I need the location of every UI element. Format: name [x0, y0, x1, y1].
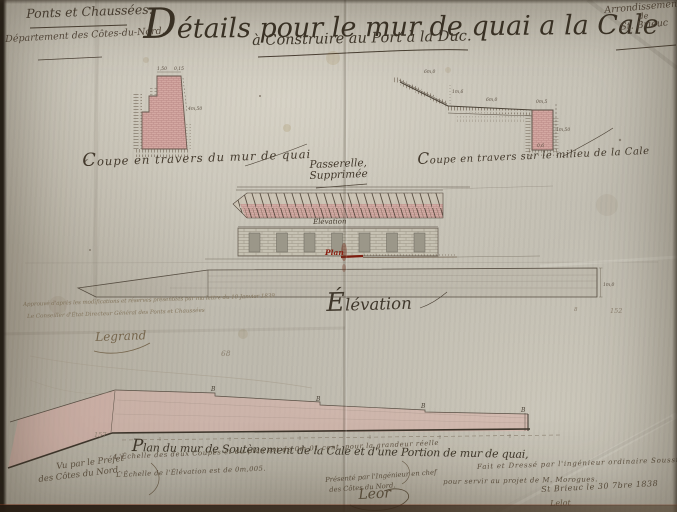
passerelle-caption: Passerelle, Supprimée — [309, 158, 368, 182]
svg-text:B: B — [210, 386, 216, 393]
photo-edge-right — [672, 0, 677, 512]
svg-text:1m,6: 1m,6 — [452, 89, 464, 95]
svg-text:4m,50: 4m,50 — [187, 106, 202, 112]
ramp-plan-drawing — [233, 186, 553, 218]
pencil-number-8: 8 — [574, 308, 578, 314]
photo-edge-left — [0, 0, 7, 512]
svg-text:1m,50: 1m,50 — [556, 127, 570, 133]
svg-text:B: B — [315, 396, 321, 403]
svg-text:B: B — [520, 407, 526, 414]
plan-red-caption: Plan — [325, 249, 344, 257]
presented-signature: Leor — [358, 486, 391, 502]
elevation-caption: Élévation — [326, 288, 412, 317]
svg-text:0m,5: 0m,5 — [536, 99, 548, 105]
coupe-right-drawing — [392, 76, 559, 156]
svg-text:6m,0: 6m,0 — [424, 69, 436, 75]
pencil-number-157: 157 — [94, 432, 106, 439]
svg-text:0,15: 0,15 — [174, 66, 184, 72]
passerelle-line2: Supprimée — [309, 169, 368, 182]
svg-text:1,50: 1,50 — [157, 66, 167, 72]
drawing-sheet: 1,50 0,15 4m,50 6m,0 1m,6 6m,0 0m,5 1m,5… — [0, 0, 677, 512]
brick-elevation-drawing — [25, 227, 658, 264]
photo-edge-top — [0, 0, 677, 4]
svg-text:6m,0: 6m,0 — [486, 97, 498, 103]
svg-text:B: B — [420, 403, 426, 410]
approval-signature: Legrand — [95, 329, 146, 343]
pencil-number-152: 152 — [610, 308, 622, 315]
svg-text:1m,0: 1m,0 — [603, 282, 615, 288]
coupe-left-drawing — [132, 72, 191, 157]
pencil-number-68: 68 — [221, 350, 231, 358]
photo-edge-bottom — [0, 505, 677, 512]
brick-elevation-caption: Elévation — [313, 218, 347, 226]
